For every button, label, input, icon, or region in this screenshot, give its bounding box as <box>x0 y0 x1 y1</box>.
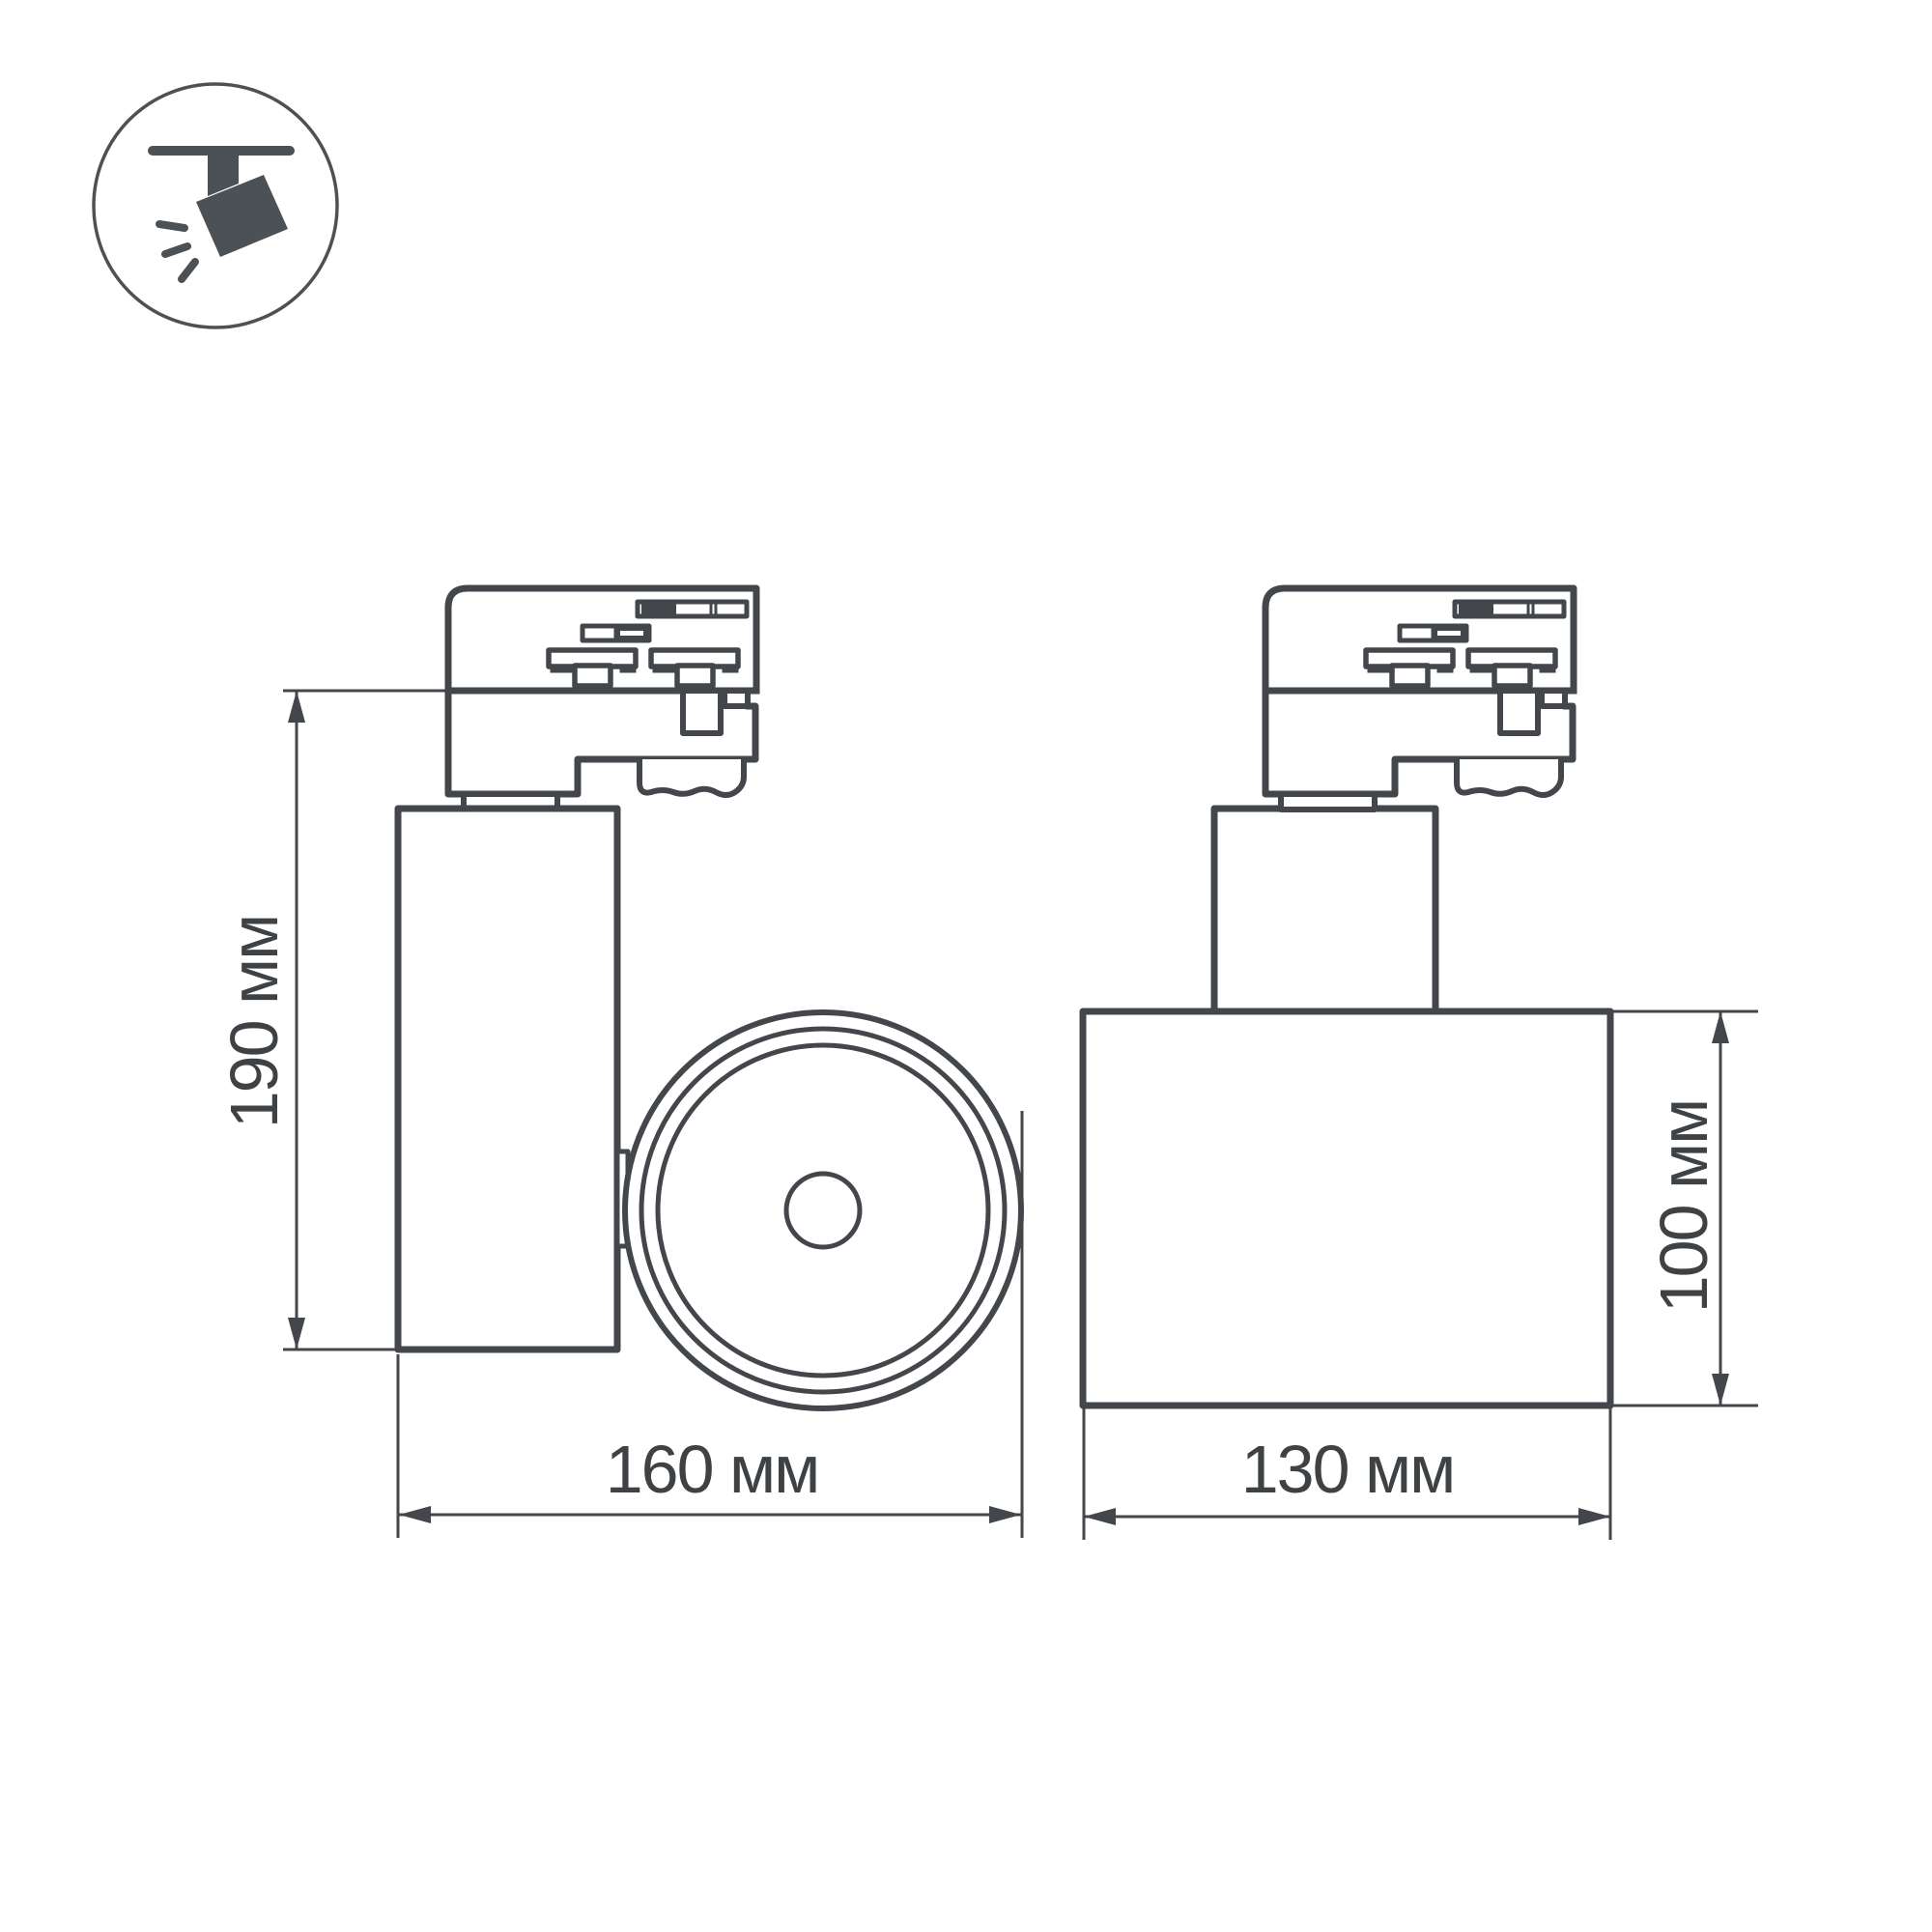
arrowhead-up <box>288 691 305 723</box>
technical-drawing-page: 190 мм 160 мм 130 мм 100 мм <box>0 0 1932 1932</box>
side-view-lamp-body <box>398 809 617 1350</box>
front-view-track-adapter <box>1265 588 1574 810</box>
arrowhead-up <box>1712 1011 1729 1043</box>
side-view-drawing <box>398 588 1021 1408</box>
front-view-neck <box>1214 809 1435 1011</box>
side-view-lens-head <box>625 1012 1021 1408</box>
arrowhead-down <box>1712 1374 1729 1406</box>
arrowhead-right <box>989 1506 1021 1523</box>
arrowhead-left <box>1084 1508 1116 1525</box>
arrowhead-right <box>1578 1508 1610 1525</box>
dimension-label-height-side: 190 мм <box>216 916 292 1129</box>
side-view-track-adapter <box>448 588 756 810</box>
front-view-drawing <box>1083 588 1610 1406</box>
track-spotlight-icon <box>94 84 337 327</box>
dimension-drawing: 190 мм 160 мм 130 мм 100 мм <box>0 0 1932 1932</box>
icon-light-rays <box>159 224 195 279</box>
dimension-label-width-side: 160 мм <box>606 1432 819 1507</box>
dimension-label-height-front: 100 мм <box>1646 1100 1721 1314</box>
dimension-label-width-front: 130 мм <box>1241 1432 1455 1507</box>
arrowhead-down <box>288 1318 305 1350</box>
front-view-lamp-body <box>1083 1011 1610 1406</box>
dimension-width-front-view: 130 мм <box>1084 1408 1610 1540</box>
dimension-height-front-view: 100 мм <box>1613 1011 1758 1406</box>
arrowhead-left <box>399 1506 431 1523</box>
